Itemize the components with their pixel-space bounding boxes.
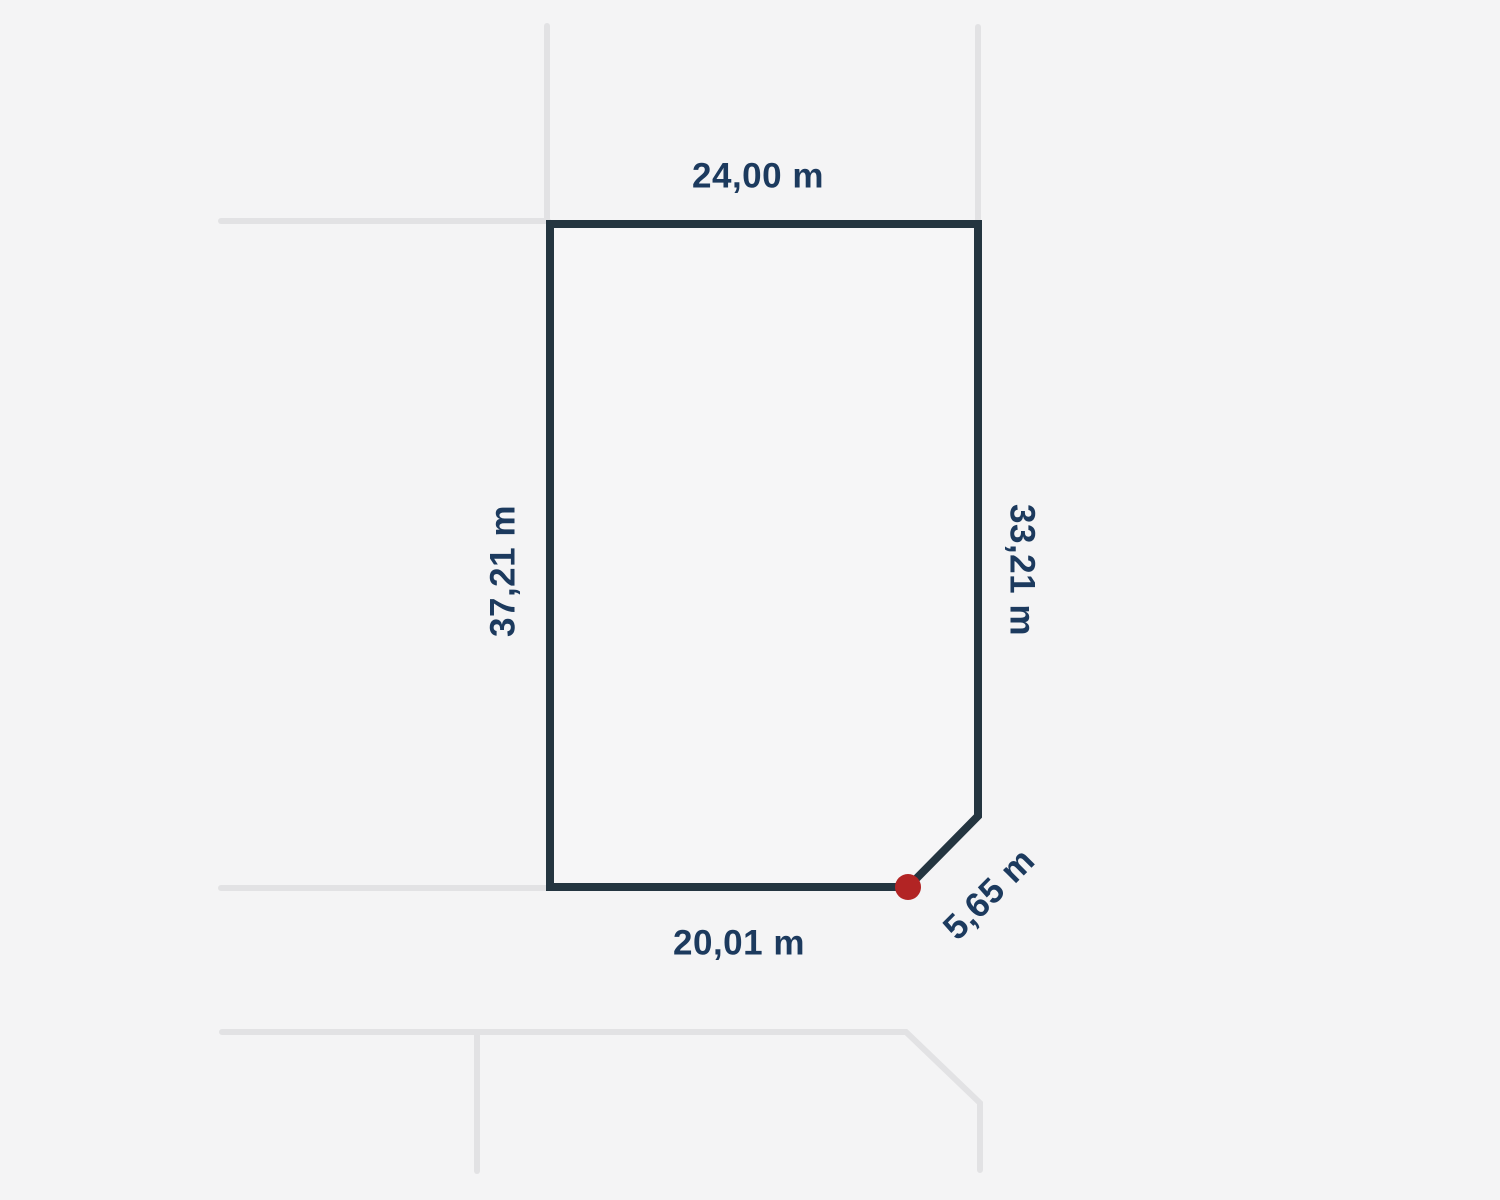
parcel-plan: 24,00 m 37,21 m 33,21 m 20,01 m 5,65 m [0, 0, 1500, 1200]
parcel-outline [550, 224, 978, 887]
dimension-label-left: 37,21 m [484, 505, 523, 637]
dimension-label-bottom: 20,01 m [673, 924, 805, 963]
dimension-label-right: 33,21 m [1003, 504, 1042, 636]
vertex-marker-dot [895, 874, 921, 900]
dimension-label-corner: 5,65 m [936, 841, 1043, 948]
parcel-plan-canvas: 24,00 m 37,21 m 33,21 m 20,01 m 5,65 m [0, 0, 1500, 1200]
neighbor-line-bottom-road [222, 1032, 980, 1170]
dimension-label-top: 24,00 m [692, 157, 824, 196]
